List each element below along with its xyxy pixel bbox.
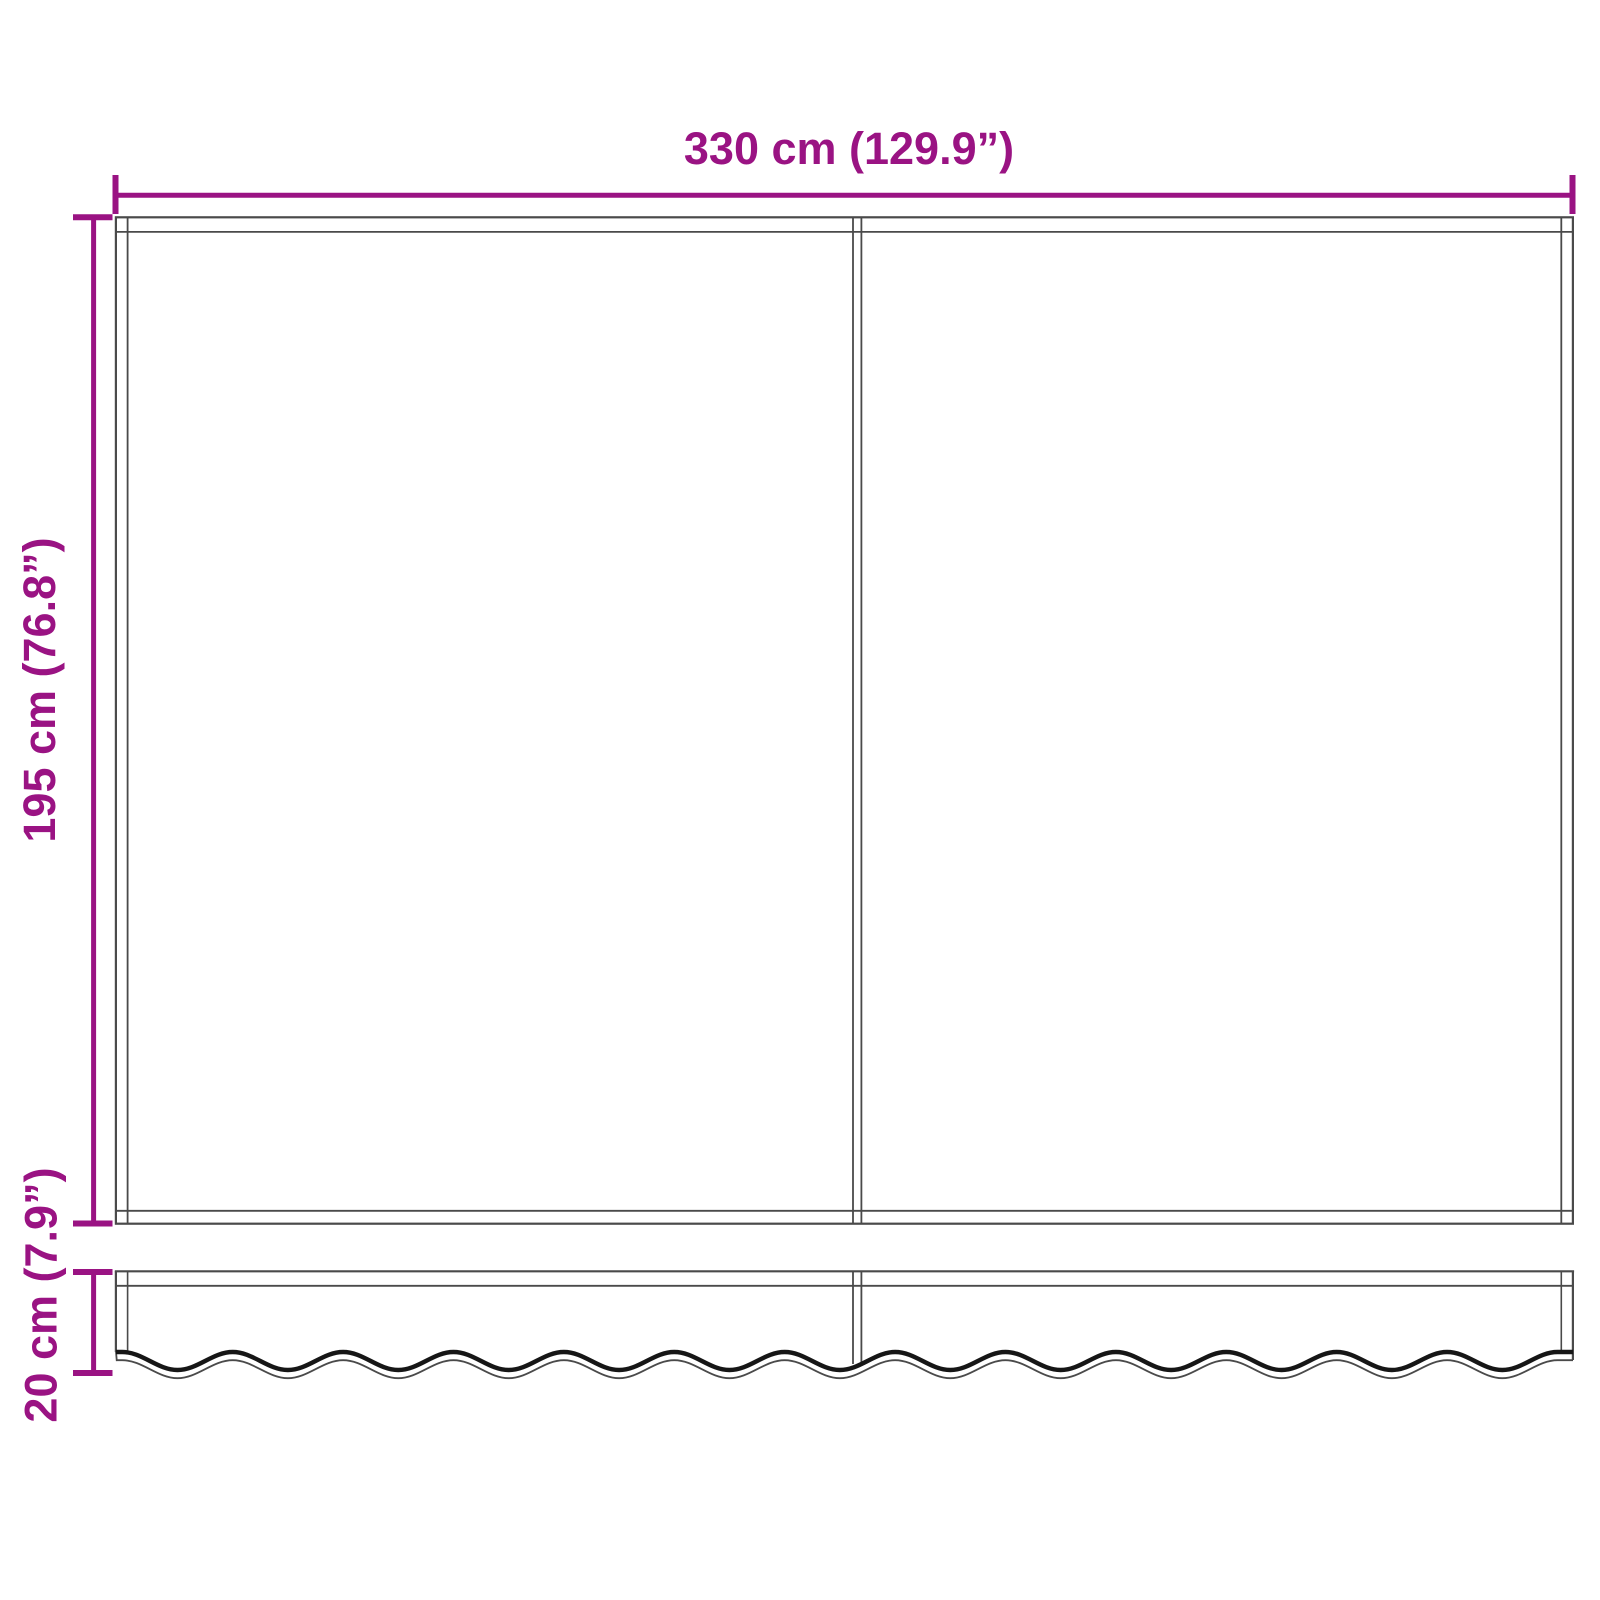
svg-text:195 cm (76.8”): 195 cm (76.8”) [14, 537, 65, 842]
svg-text:20 cm (7.9”): 20 cm (7.9”) [16, 1167, 67, 1422]
svg-text:330 cm (129.9”): 330 cm (129.9”) [684, 123, 1014, 174]
